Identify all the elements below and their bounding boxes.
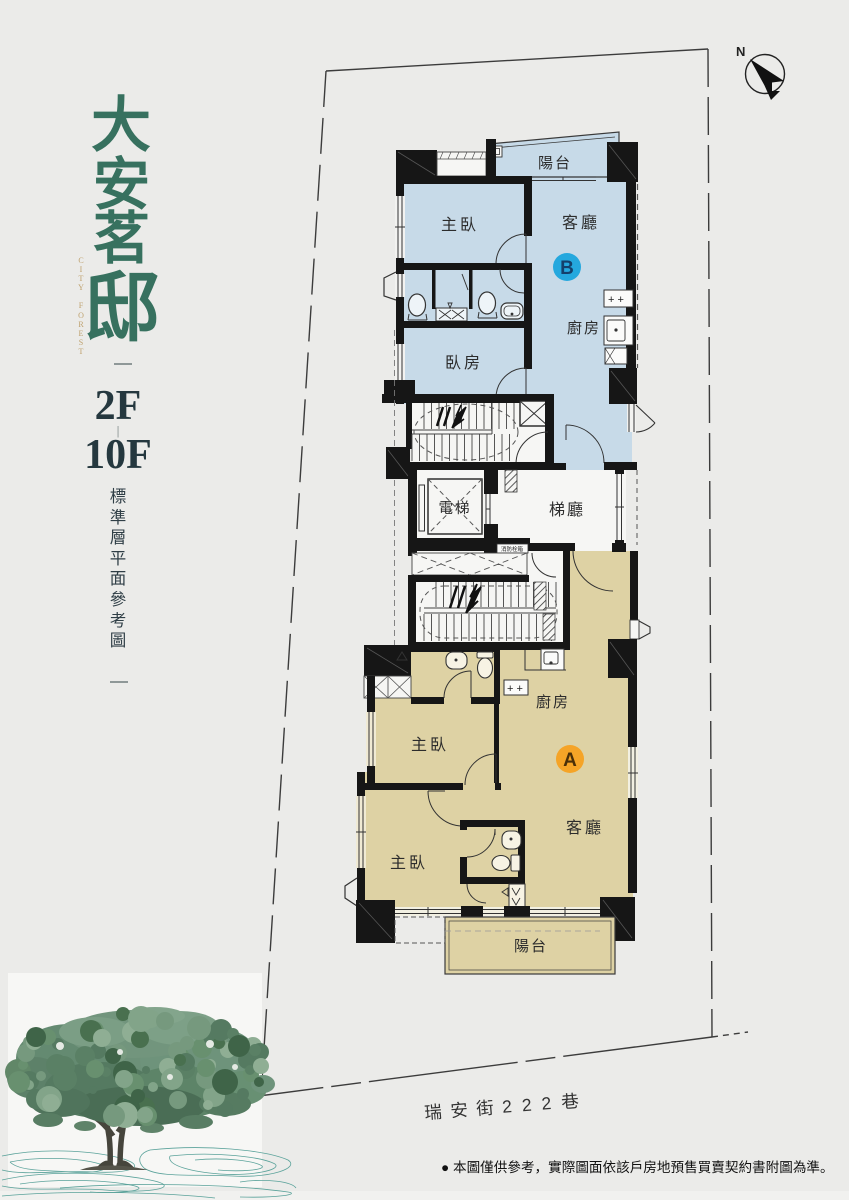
- svg-text:A: A: [563, 750, 577, 771]
- svg-text:瑞安街222巷: 瑞安街222巷: [424, 1090, 588, 1123]
- svg-text:梯廳: 梯廳: [549, 500, 585, 519]
- svg-text:主臥: 主臥: [390, 854, 428, 872]
- svg-text:廚房: 廚房: [567, 319, 601, 337]
- svg-text:客廳: 客廳: [562, 213, 600, 232]
- svg-text:廚房: 廚房: [536, 693, 570, 711]
- svg-text:N: N: [736, 44, 745, 59]
- svg-text:消防栓箱: 消防栓箱: [501, 545, 524, 553]
- svg-text:客廳: 客廳: [566, 818, 604, 837]
- svg-text:B: B: [560, 258, 574, 279]
- svg-text:主臥: 主臥: [411, 736, 449, 754]
- svg-text:陽台: 陽台: [538, 155, 572, 172]
- svg-text:+ +: + +: [507, 683, 523, 695]
- svg-text:主臥: 主臥: [441, 216, 479, 234]
- svg-text:陽台: 陽台: [514, 938, 548, 955]
- svg-text:+ +: + +: [608, 294, 624, 306]
- svg-text:臥房: 臥房: [445, 354, 483, 372]
- svg-text:電梯: 電梯: [439, 500, 472, 517]
- svg-text:● 本圖僅供參考，實際圖面依該戶房地預售買賣契約書附圖為準。: ● 本圖僅供參考，實際圖面依該戶房地預售買賣契約書附圖為準。: [441, 1159, 834, 1175]
